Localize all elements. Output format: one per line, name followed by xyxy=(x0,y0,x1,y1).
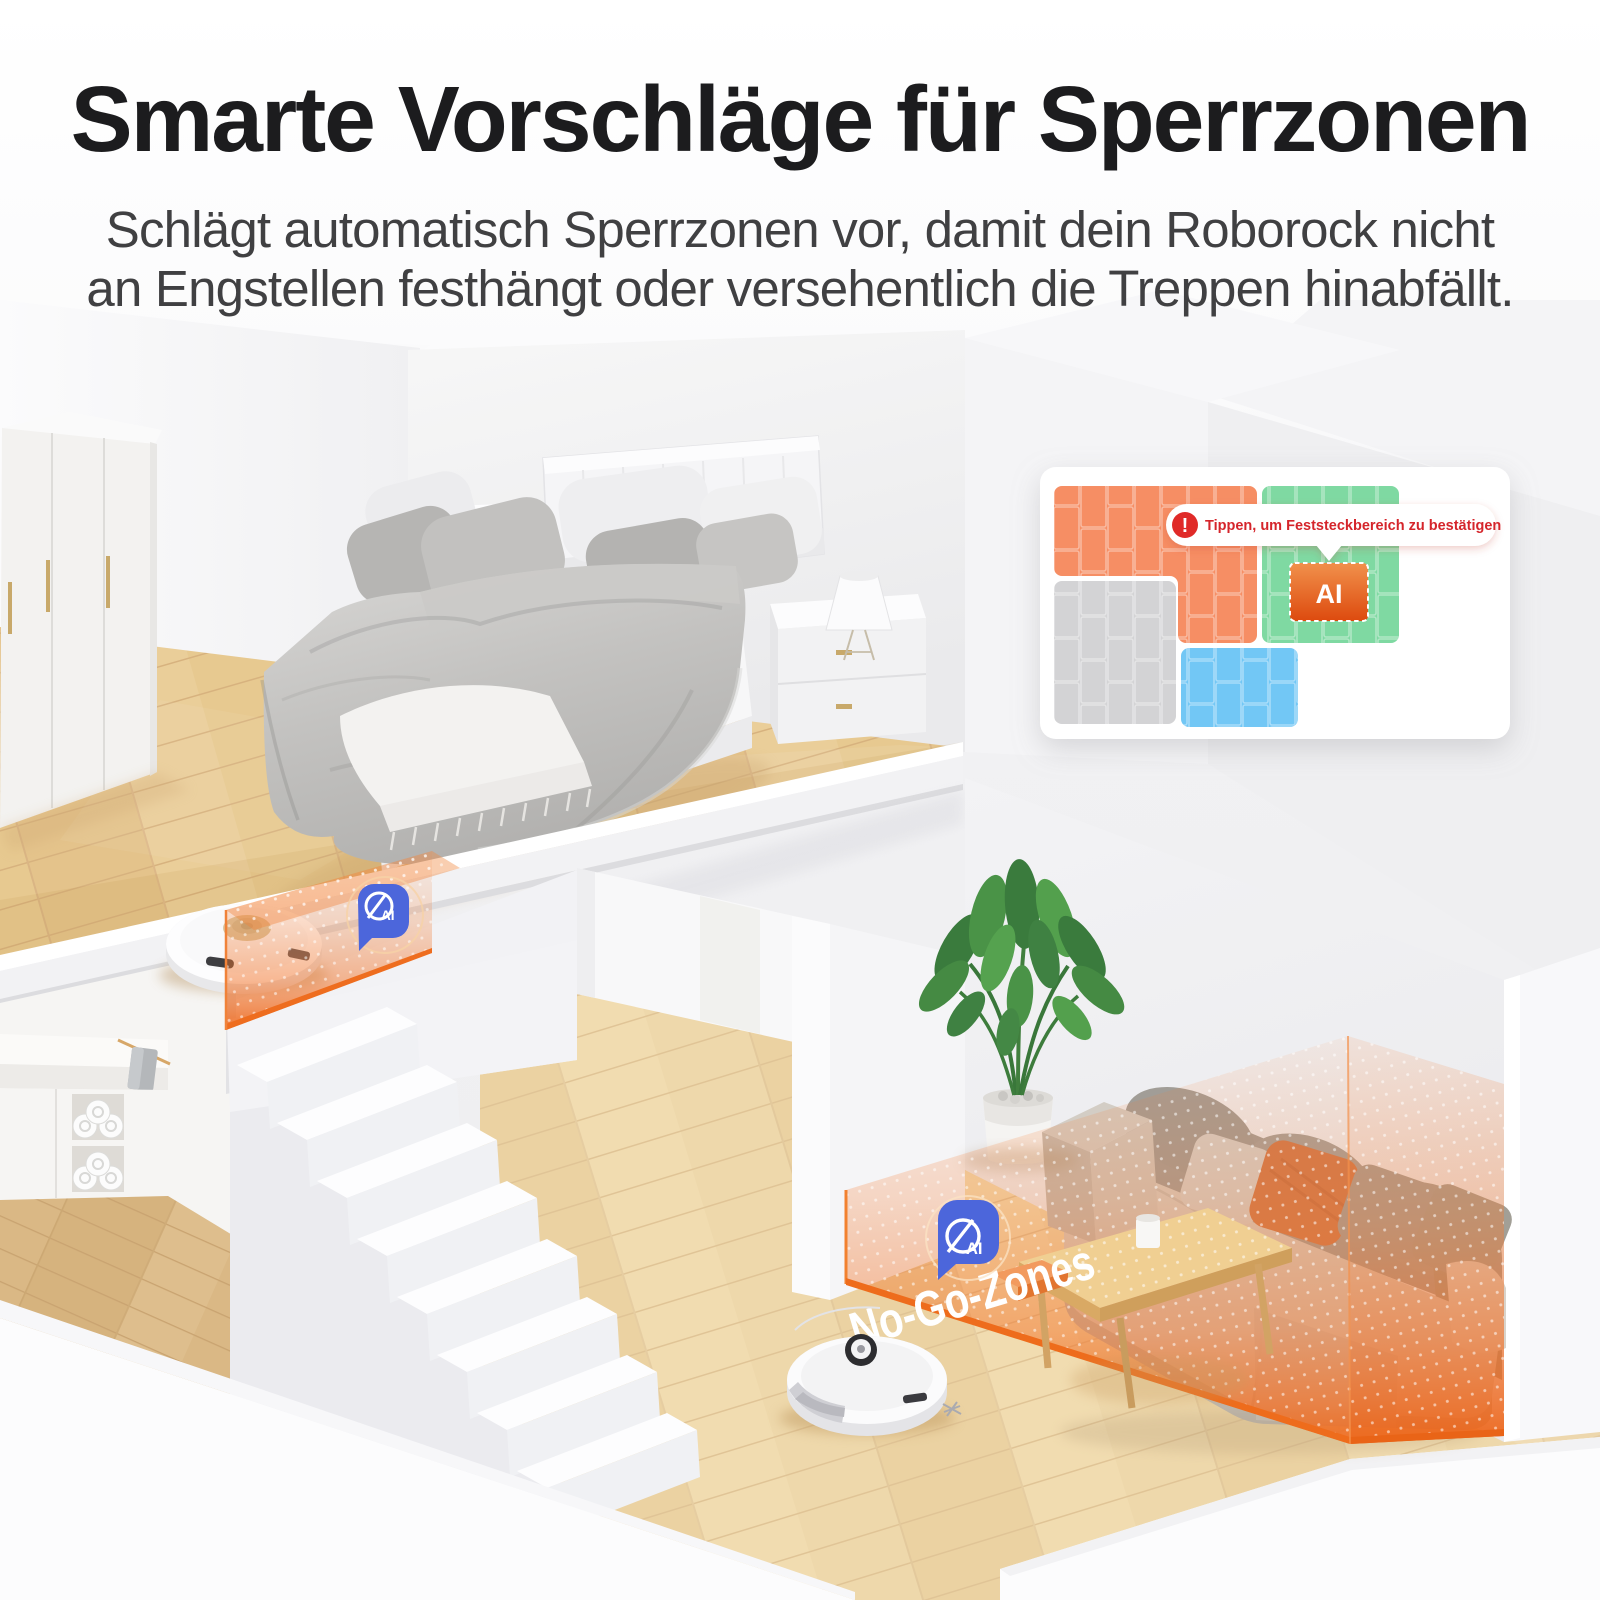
svg-text:AI: AI xyxy=(381,908,395,923)
svg-text:AI: AI xyxy=(966,1240,983,1258)
svg-text:!: ! xyxy=(1182,515,1189,537)
svg-text:AI: AI xyxy=(1316,579,1343,609)
svg-text:Tippen, um Feststeckbereich zu: Tippen, um Feststeckbereich zu bestätige… xyxy=(1205,518,1501,534)
